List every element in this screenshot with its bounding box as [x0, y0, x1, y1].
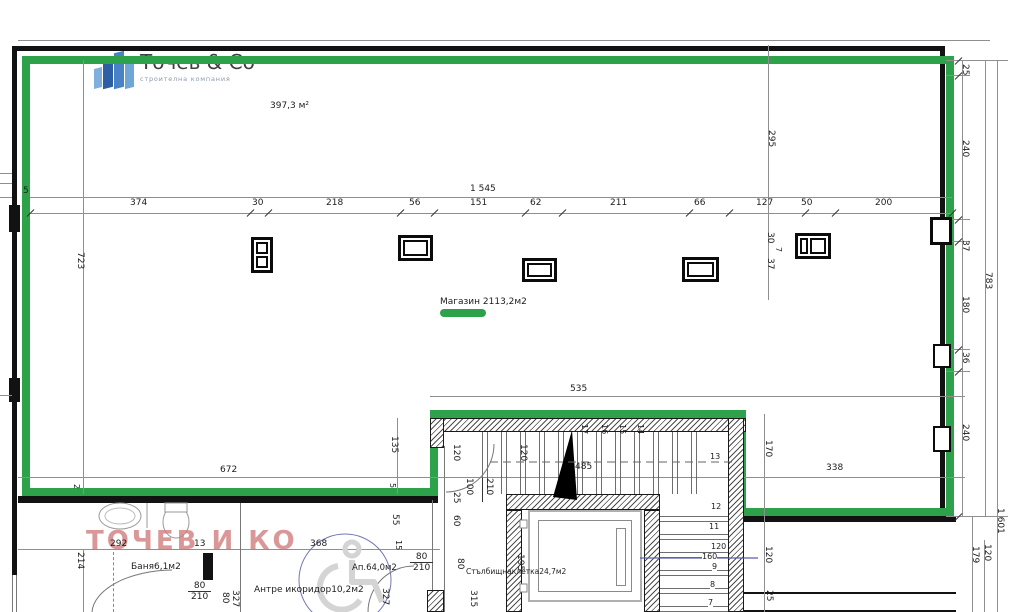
dim-label: 218 [326, 199, 343, 208]
dim-label: 120 [711, 543, 726, 551]
window-right-c [933, 426, 951, 452]
dim-label: 240 [960, 424, 969, 441]
dim-label: 80 [455, 558, 464, 569]
dim-label: 211 [610, 199, 627, 208]
door-size-label: 100 [464, 478, 473, 495]
dim-label: 36 [960, 352, 969, 363]
dim-label: 55 [390, 514, 399, 525]
floor-plan-canvas: Точев & Co строителна компания [0, 0, 1024, 612]
dim-label: 374 [130, 199, 147, 208]
dim-label: 179 [970, 546, 979, 563]
dim-label: 214 [75, 552, 84, 569]
door-arc-bath [92, 570, 172, 612]
dim-label: 783 [983, 272, 992, 289]
bath-label: Баня6,1м2 [131, 562, 181, 572]
dim-label: 170 [763, 440, 772, 457]
dim-label: 135 [389, 436, 398, 453]
dim-label: 1 601 [995, 508, 1004, 534]
door-size-label: 80 210 [410, 552, 433, 574]
dim-label: 37 [765, 258, 774, 269]
shop-label: Магазин 2113,2м2 [440, 298, 527, 307]
dim-label: 25 [451, 492, 460, 503]
step-number: 14 [636, 424, 644, 434]
step-number: 7 [708, 599, 713, 607]
dim-label: 120 [518, 444, 527, 461]
fraction-bar [482, 478, 483, 502]
dim-label: 25 [960, 64, 969, 75]
total-area-label: 397,3 м² [270, 102, 309, 111]
window-right-a [930, 217, 952, 245]
dim-label: 50 [801, 199, 812, 208]
wheelchair-icon [345, 542, 359, 556]
dim-label: 80 [220, 592, 229, 603]
door-size-label: 210 [484, 478, 493, 495]
door-size-label: 80 210 [188, 581, 211, 603]
dim-label: 5 [23, 187, 29, 196]
dim-label: 535 [570, 385, 587, 394]
dim-label: 180 [960, 296, 969, 313]
dim-label: 1 545 [470, 185, 496, 194]
step-number: 12 [711, 503, 721, 511]
dim-label: 25 [764, 590, 773, 601]
dim-label: 127 [756, 199, 773, 208]
dim-label: 485 [575, 463, 592, 472]
dim-label: 327 [380, 588, 389, 605]
dim-label: 195 [515, 554, 524, 571]
step-number: 8 [710, 581, 715, 589]
step-number: 9 [712, 563, 717, 571]
dim-label: 15 [394, 540, 402, 550]
dim-label: 315 [468, 590, 477, 607]
dim-label: 30 [252, 199, 263, 208]
dim-label: 13 [194, 540, 205, 549]
dim-label: 292 [110, 540, 127, 549]
apartment-label: Ап.64,0м2 [352, 563, 397, 573]
window-right-b [933, 344, 951, 368]
dim-label: 338 [826, 464, 843, 473]
dim-label: 672 [220, 466, 237, 475]
dim-label: 240 [960, 140, 969, 157]
dim-label: 7 [774, 247, 782, 252]
shop-highlight-bar [440, 309, 486, 317]
dim-label: 723 [75, 252, 84, 269]
dim-label: 295 [766, 130, 775, 147]
hall-label: Антре икоридор10,2м2 [254, 585, 364, 595]
dim-label: 120 [763, 546, 772, 563]
step-number: 17 [580, 424, 588, 434]
dim-label: 151 [470, 199, 487, 208]
dim-label: 60 [451, 515, 460, 526]
dim-label: 30 [765, 232, 774, 243]
dim-label: 368 [310, 540, 327, 549]
dim-label: 120 [451, 444, 460, 461]
dim-label: 200 [875, 199, 892, 208]
dim-label: 62 [530, 199, 541, 208]
dim-label: 160 [702, 553, 717, 561]
dim-label: 56 [409, 199, 420, 208]
step-number: 11 [709, 523, 719, 531]
step-number: 16 [600, 424, 608, 434]
dim-label: 5 [388, 483, 396, 488]
dim-label: 327 [230, 590, 239, 607]
step-number: 15 [618, 424, 626, 434]
stair-direction-arrow [553, 430, 577, 500]
dim-label: 37 [960, 240, 969, 251]
step-number: 13 [710, 453, 720, 461]
dim-label: 66 [694, 199, 705, 208]
dim-label: 120 [982, 544, 991, 561]
dim-label: 2 [72, 484, 80, 489]
